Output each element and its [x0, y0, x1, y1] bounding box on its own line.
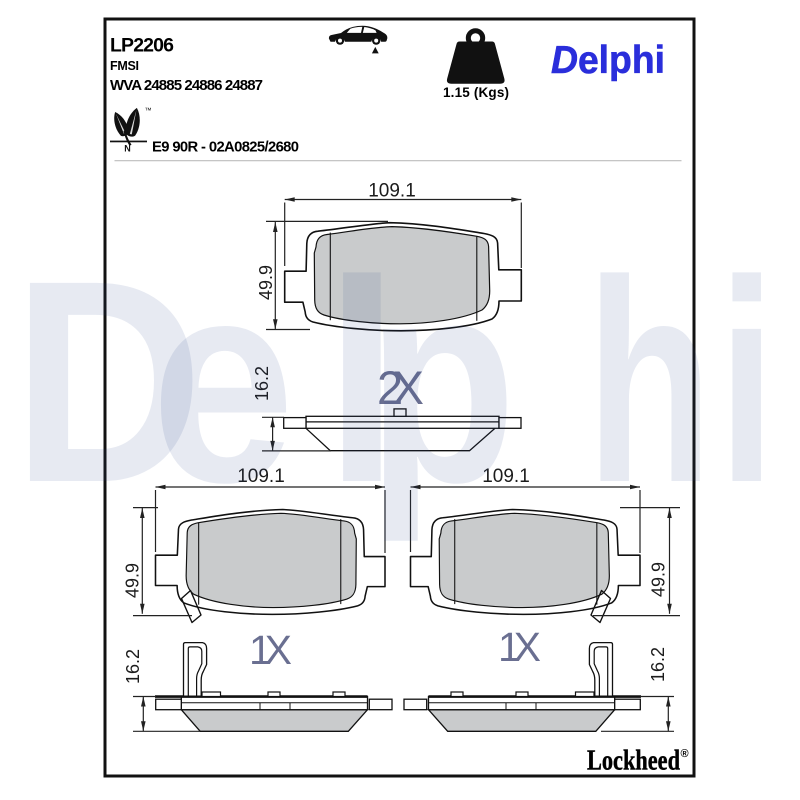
svg-text:h: h: [586, 222, 713, 543]
svg-text:e: e: [151, 221, 295, 543]
svg-text:1X: 1X: [249, 627, 292, 673]
svg-text:E9 90R - 02A0825/2680: E9 90R - 02A0825/2680: [152, 140, 299, 156]
svg-text:Delphi: Delphi: [551, 39, 665, 82]
svg-text:™: ™: [145, 108, 152, 115]
svg-text:i: i: [718, 222, 776, 543]
svg-text:1X: 1X: [498, 624, 541, 670]
svg-text:16.2: 16.2: [648, 647, 668, 682]
svg-text:109.1: 109.1: [368, 181, 416, 202]
svg-text:16.2: 16.2: [123, 649, 143, 684]
svg-text:49.9: 49.9: [649, 562, 669, 597]
svg-text:p: p: [367, 220, 517, 544]
svg-text:LP2206: LP2206: [110, 35, 174, 57]
svg-text:®: ®: [681, 748, 689, 760]
svg-text:WVA 24885 24886 24887: WVA 24885 24886 24887: [110, 77, 263, 94]
svg-text:49.9: 49.9: [123, 563, 143, 598]
svg-text:FMSI: FMSI: [110, 59, 139, 73]
svg-text:N: N: [124, 144, 131, 154]
svg-text:Lockheed: Lockheed: [587, 746, 680, 777]
svg-text:1.15 (Kgs): 1.15 (Kgs): [443, 85, 509, 100]
